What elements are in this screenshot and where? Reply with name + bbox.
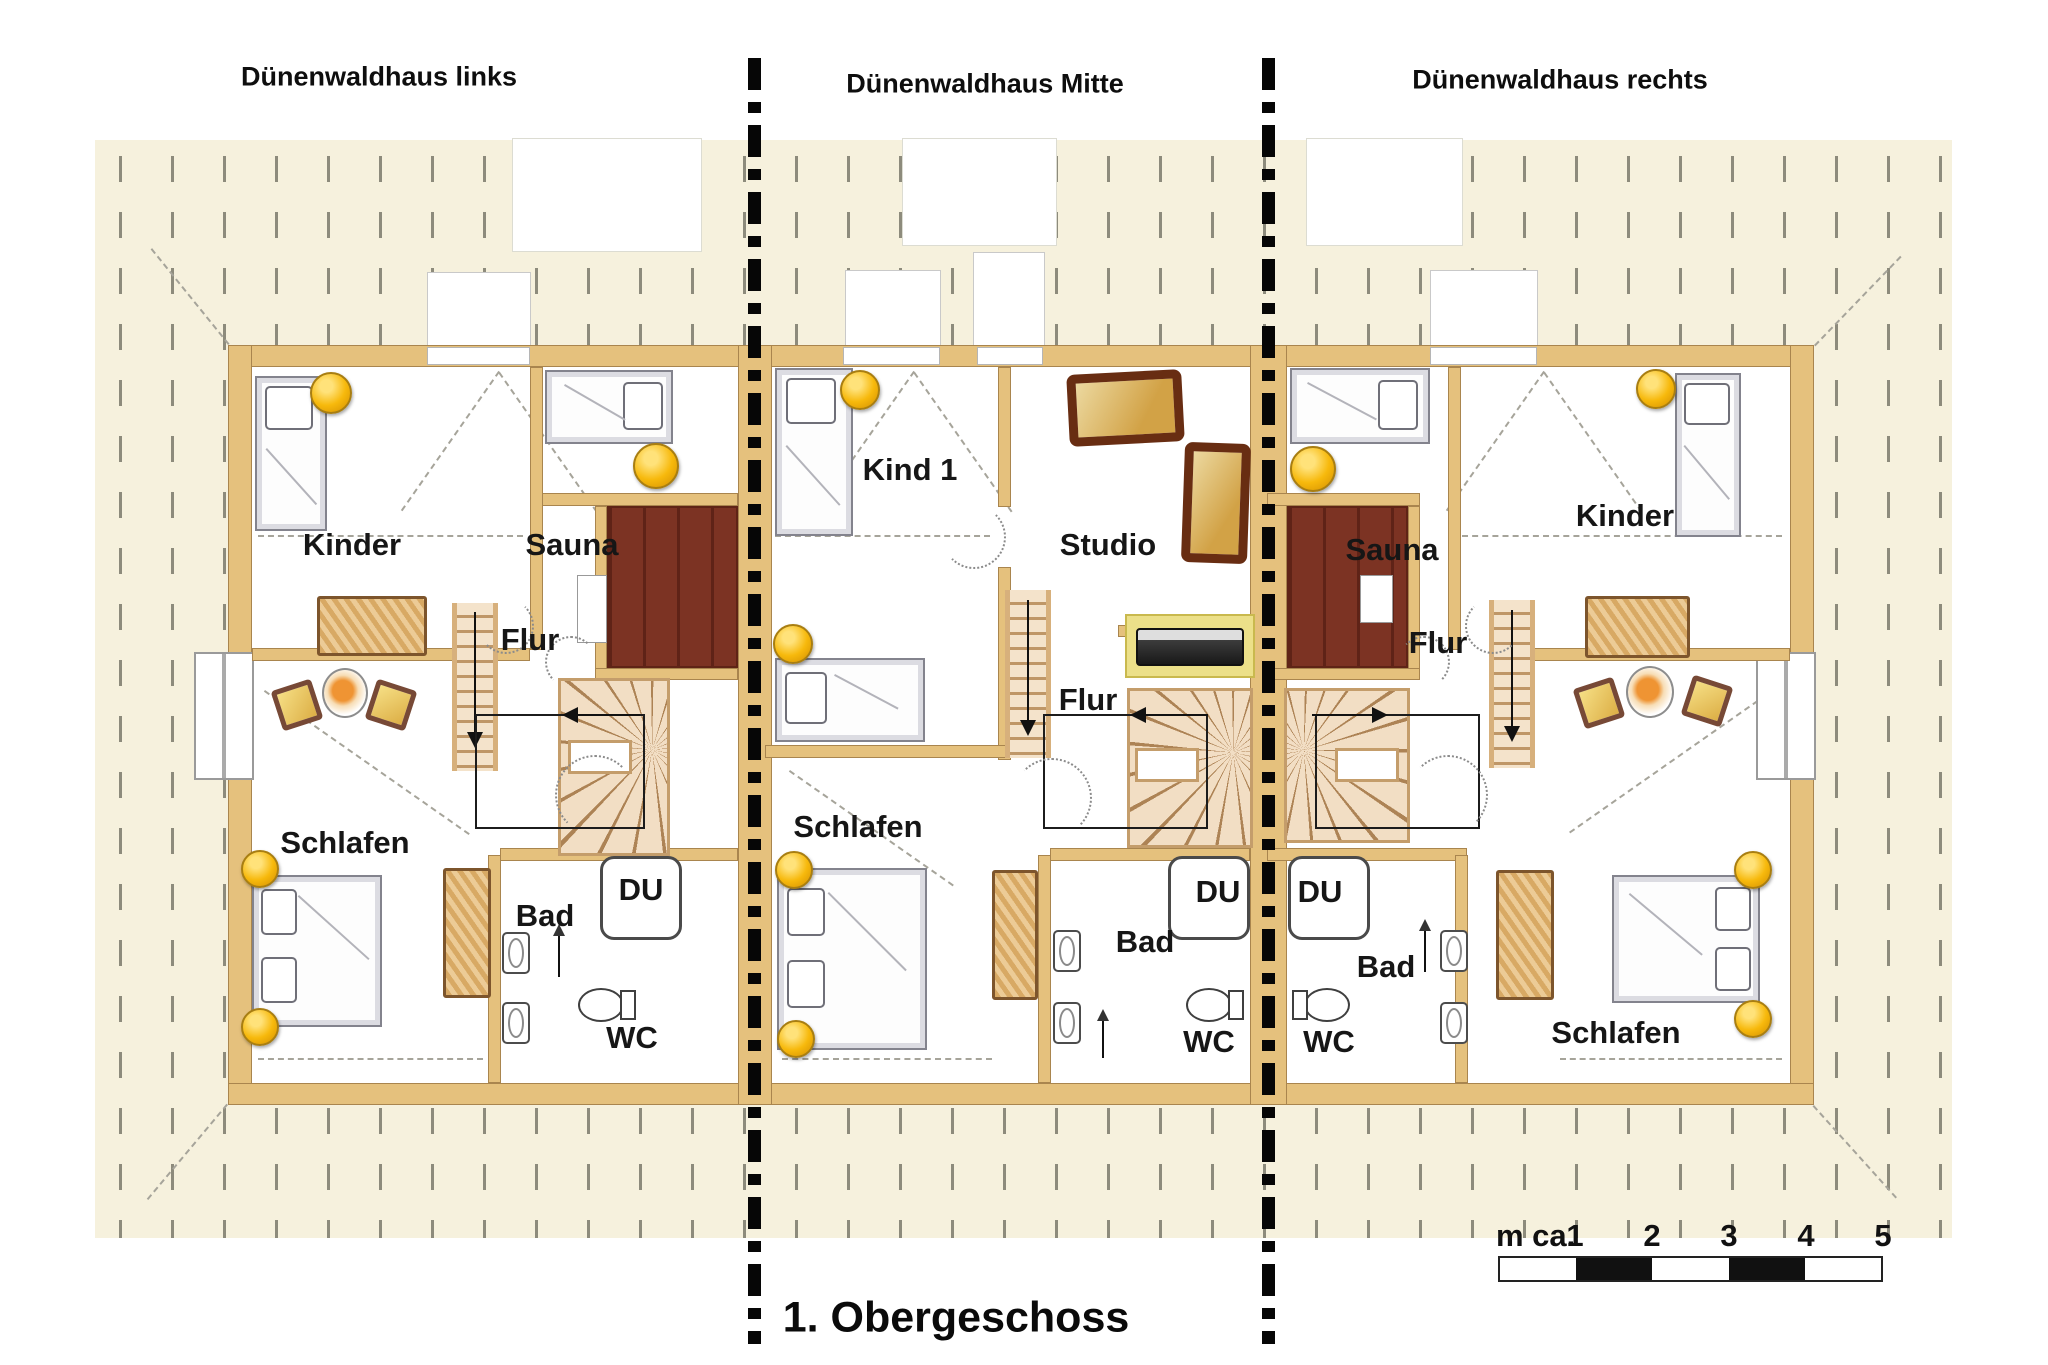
lamp [241, 850, 279, 888]
room-label-bad: Bad [1116, 924, 1175, 960]
dresser [317, 596, 427, 656]
room-label-du: DU [1298, 874, 1343, 910]
bath-arrow-head [1097, 1009, 1109, 1021]
window [1430, 347, 1537, 365]
partition [1038, 855, 1051, 1083]
single-bed [1290, 368, 1430, 444]
wall [1267, 1083, 1814, 1105]
round-table [322, 668, 368, 718]
wardrobe [1496, 870, 1554, 1000]
pillow [1715, 947, 1751, 991]
room-label-sauna: Sauna [1345, 532, 1438, 568]
scale-segment [1500, 1258, 1576, 1280]
lamp [1734, 851, 1772, 889]
room-label-schlafen: Schlafen [1551, 1015, 1680, 1051]
sofa [1066, 369, 1185, 447]
scale-unit-label: m ca. [1496, 1218, 1575, 1254]
lamp [633, 443, 679, 489]
door-arc [1465, 598, 1521, 654]
partition [765, 745, 1010, 758]
sink [1053, 930, 1081, 972]
pillow [261, 957, 297, 1003]
scale-tick: 5 [1874, 1218, 1891, 1254]
lamp [773, 624, 813, 664]
stair-arrow-head [1020, 720, 1036, 736]
partition [1267, 493, 1420, 506]
room-label-schlafen: Schlafen [280, 825, 409, 861]
pillow [623, 382, 663, 430]
round-table [1626, 666, 1674, 718]
window [194, 652, 254, 780]
blanket-fold [298, 895, 370, 960]
stair-arrow [1312, 714, 1374, 716]
slope-line [1560, 1058, 1782, 1060]
pillow [787, 888, 825, 936]
pillow [1684, 383, 1730, 425]
scale-tick: 1 [1566, 1218, 1583, 1254]
toilet-tank [1292, 990, 1308, 1020]
roof-notch [512, 138, 702, 252]
blanket-fold [786, 445, 841, 506]
bath-arrow-head [1419, 919, 1431, 931]
room-label-sauna: Sauna [525, 527, 618, 563]
door-arc [555, 755, 635, 835]
wall [228, 1083, 755, 1105]
single-bed [1675, 373, 1741, 537]
double-bed [1612, 875, 1760, 1003]
lamp [241, 1008, 279, 1046]
sink [502, 932, 530, 974]
pillow [1715, 887, 1751, 931]
window [427, 347, 530, 365]
pillow [787, 960, 825, 1008]
wall [1267, 345, 1814, 367]
double-bed [252, 875, 382, 1027]
sink [502, 1002, 530, 1044]
lamp [840, 370, 880, 410]
bath-arrow [1102, 1020, 1104, 1058]
blanket-fold [564, 384, 626, 421]
sink [1053, 1002, 1081, 1044]
wardrobe [443, 868, 491, 998]
toilet [1186, 988, 1232, 1022]
lamp [1636, 369, 1676, 409]
single-bed [775, 658, 925, 742]
pillow [1378, 380, 1418, 430]
sink [1440, 1002, 1468, 1044]
room-label-du: DU [1196, 874, 1241, 910]
sauna-floor-links [607, 506, 738, 668]
blanket-fold [1629, 893, 1703, 956]
pillow [785, 672, 827, 724]
toilet [578, 988, 624, 1022]
blanket-fold [1307, 382, 1377, 420]
door-arc [1012, 758, 1092, 838]
blanket-fold [1683, 445, 1730, 500]
window [1756, 652, 1816, 780]
door-arc [1408, 755, 1488, 835]
window [977, 347, 1043, 365]
lamp [775, 851, 813, 889]
scale-tick: 2 [1643, 1218, 1660, 1254]
sofa [1181, 442, 1251, 564]
room-label-wc: WC [1303, 1024, 1355, 1060]
slope-line [258, 1058, 483, 1060]
room-label-schlafen: Schlafen [793, 809, 922, 845]
stair-arrow [578, 714, 640, 716]
partition [530, 367, 543, 650]
room-label-bad: Bad [516, 898, 575, 934]
window [843, 347, 940, 365]
toilet-tank [620, 990, 636, 1020]
room-label-flur: Flur [501, 622, 560, 658]
scale-tick: 4 [1797, 1218, 1814, 1254]
unit-separator [1262, 58, 1275, 1344]
bath-arrow [1424, 930, 1426, 972]
floor-plan: Dünenwaldhaus links Dünenwaldhaus Mitte … [0, 0, 2048, 1365]
wall [755, 1083, 1267, 1105]
room-label-du: DU [619, 872, 664, 908]
scale-segment [1729, 1258, 1805, 1280]
scale-bar: m ca. 1 2 3 4 5 [1496, 1218, 1888, 1282]
desk [1136, 628, 1244, 666]
stair-arrow [1027, 600, 1029, 722]
scale-tick: 3 [1720, 1218, 1737, 1254]
room-label-wc: WC [1183, 1024, 1235, 1060]
lamp [310, 372, 352, 414]
house-title-links: Dünenwaldhaus links [241, 62, 517, 93]
stair-arrow-head [1372, 707, 1388, 723]
scale-segment [1576, 1258, 1652, 1280]
sink [1440, 930, 1468, 972]
stair-arrow-head [1130, 707, 1146, 723]
lamp [1734, 1000, 1772, 1038]
dresser [1585, 596, 1690, 658]
room-label-wc: WC [606, 1020, 658, 1056]
sauna-bench [577, 575, 607, 643]
partition [1267, 668, 1420, 680]
pillow [261, 889, 297, 935]
toilet-tank [1228, 990, 1244, 1020]
slope-line [782, 1058, 992, 1060]
wardrobe [992, 870, 1038, 1000]
bath-arrow [558, 935, 560, 977]
blanket-fold [266, 448, 318, 505]
room-label-kinder: Kinder [1576, 498, 1674, 534]
scale-segment [1652, 1258, 1728, 1280]
room-label-studio: Studio [1060, 527, 1156, 563]
sauna-bench [1360, 575, 1393, 623]
stair-arrow [1146, 714, 1208, 716]
toilet [1304, 988, 1350, 1022]
room-label-kinder: Kinder [303, 527, 401, 563]
stair-arrow-head [1504, 726, 1520, 742]
lamp [1290, 446, 1336, 492]
pillow [786, 378, 836, 424]
lamp [777, 1020, 815, 1058]
partition [1448, 367, 1461, 650]
house-title-mitte: Dünenwaldhaus Mitte [846, 69, 1124, 100]
partition [542, 493, 738, 506]
roof-notch [1306, 138, 1463, 246]
house-title-rechts: Dünenwaldhaus rechts [1412, 65, 1708, 96]
floor-title: 1. Obergeschoss [783, 1294, 1130, 1343]
blanket-fold [834, 674, 899, 710]
single-bed [545, 370, 673, 444]
stair-arrow-head [562, 707, 578, 723]
partition [998, 367, 1011, 507]
pillow [265, 386, 313, 430]
blanket-fold [828, 892, 907, 971]
unit-separator [748, 58, 761, 1344]
room-label-bad: Bad [1357, 949, 1416, 985]
room-label-kind1: Kind 1 [863, 452, 958, 488]
roof-notch [902, 138, 1057, 246]
room-label-flur: Flur [1059, 682, 1118, 718]
door-arc [942, 505, 1006, 569]
room-label-flur: Flur [1409, 625, 1468, 661]
scale-bar-segments [1498, 1256, 1883, 1282]
scale-segment [1805, 1258, 1881, 1280]
